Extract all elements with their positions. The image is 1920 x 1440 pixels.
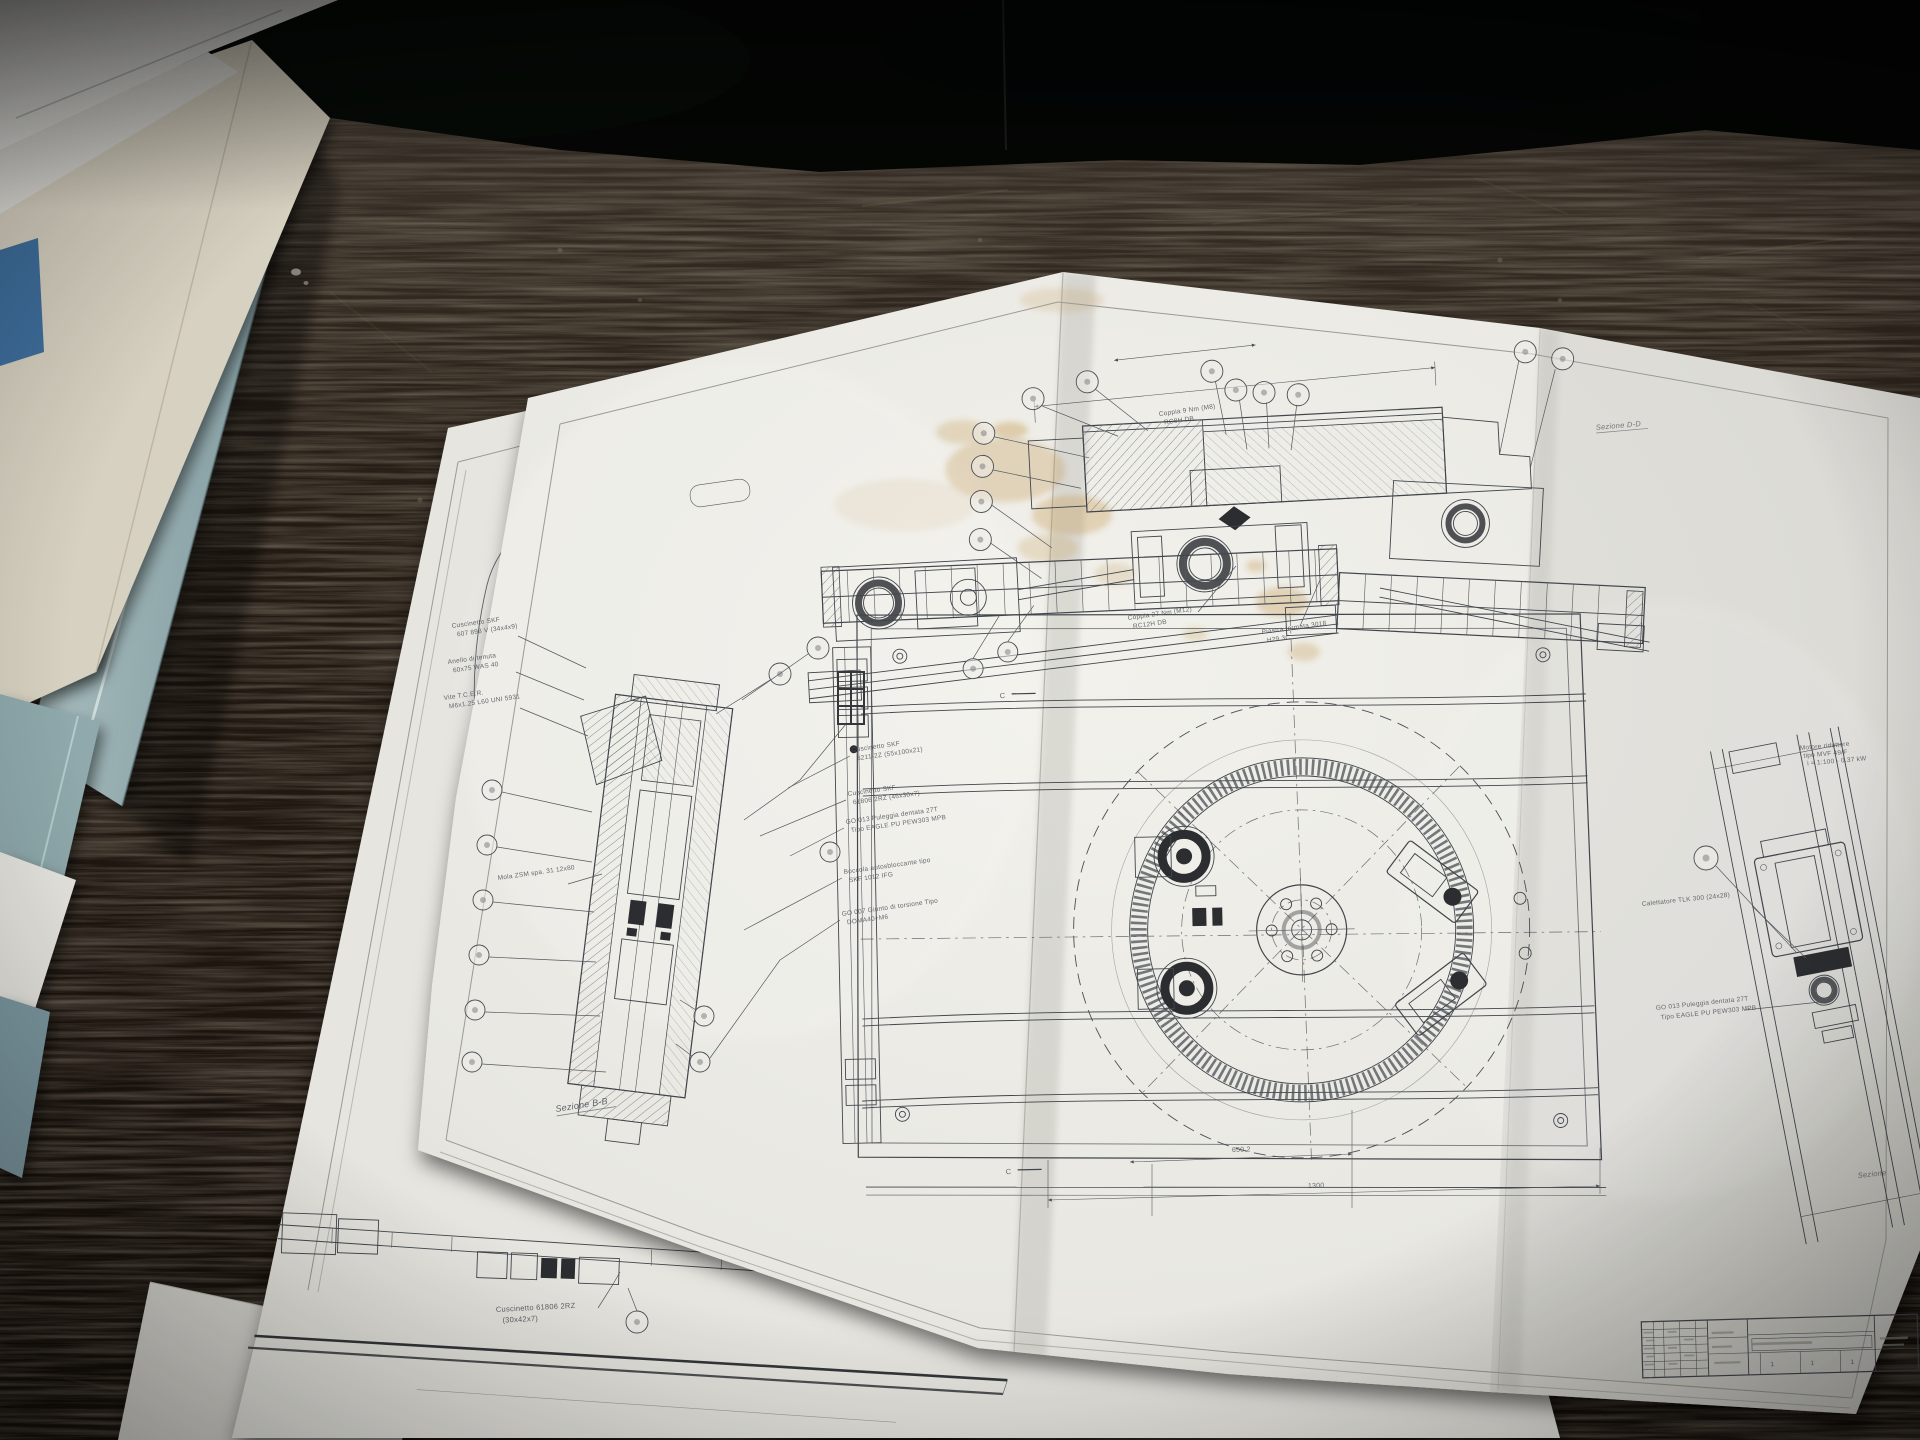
vignette-overlay: [0, 0, 1920, 1440]
photo-of-technical-drawings: Cuscinetto 61806 2RZ (30x42x7): [0, 0, 1920, 1440]
